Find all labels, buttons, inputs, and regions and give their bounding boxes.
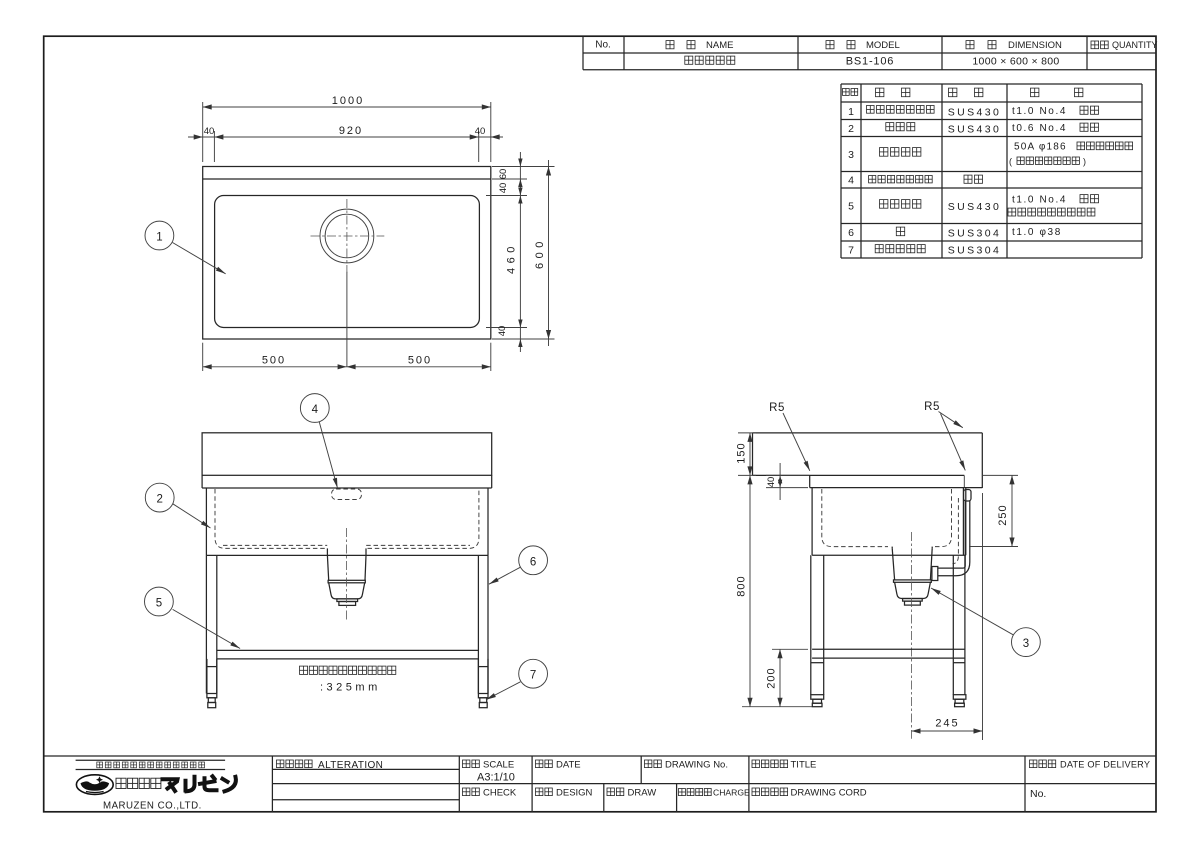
svg-text:DRAWING No.: DRAWING No.	[665, 760, 728, 771]
svg-text:SUS304: SUS304	[948, 228, 1002, 240]
svg-text:3: 3	[1023, 638, 1029, 650]
svg-text:MARUZEN CO.,LTD.: MARUZEN CO.,LTD.	[103, 801, 202, 812]
svg-text:QUANTITY: QUANTITY	[1112, 40, 1158, 50]
svg-text:DIMENSION: DIMENSION	[1008, 40, 1062, 51]
svg-text::325mm: :325mm	[320, 682, 381, 694]
svg-text:1: 1	[848, 106, 854, 118]
svg-text:800: 800	[736, 575, 748, 596]
svg-text:R5: R5	[769, 402, 785, 414]
svg-text:4: 4	[848, 175, 854, 187]
svg-text:No.: No.	[595, 40, 611, 51]
svg-text:t1.0 No.4: t1.0 No.4	[1012, 106, 1067, 117]
svg-text:No.: No.	[1030, 788, 1046, 800]
svg-text:CHECK: CHECK	[483, 788, 517, 799]
svg-text:SUS430: SUS430	[948, 124, 1002, 136]
svg-text:DESIGN: DESIGN	[556, 788, 593, 799]
svg-text:ALTERATION: ALTERATION	[318, 760, 383, 771]
svg-text:4: 4	[312, 404, 319, 416]
svg-text:MODEL: MODEL	[866, 40, 900, 51]
svg-text:7: 7	[530, 670, 536, 682]
svg-text:CHARGE: CHARGE	[713, 788, 750, 798]
svg-text:40: 40	[475, 126, 486, 137]
svg-text:TITLE: TITLE	[791, 760, 817, 771]
svg-text:7: 7	[848, 245, 854, 257]
svg-text:R5: R5	[924, 401, 940, 413]
svg-text:SUS430: SUS430	[948, 107, 1002, 119]
svg-text:1: 1	[156, 232, 162, 244]
svg-text:t0.6 No.4: t0.6 No.4	[1012, 123, 1067, 134]
svg-text:40: 40	[766, 477, 777, 488]
svg-text:6: 6	[530, 556, 536, 568]
svg-text:SCALE: SCALE	[483, 760, 514, 771]
svg-text:40: 40	[497, 326, 508, 337]
svg-text:DATE: DATE	[556, 760, 581, 771]
svg-text:DRAW: DRAW	[628, 788, 657, 799]
svg-text:245: 245	[935, 718, 959, 730]
svg-text:250: 250	[997, 504, 1009, 525]
svg-text:DRAWING CORD: DRAWING CORD	[791, 788, 867, 799]
svg-text:920: 920	[339, 125, 363, 137]
svg-text:5: 5	[156, 598, 162, 610]
svg-text:460: 460	[506, 242, 518, 274]
svg-text:): )	[1083, 157, 1086, 167]
svg-text:3: 3	[848, 149, 854, 161]
svg-text:A3:1/10: A3:1/10	[477, 772, 515, 784]
svg-text:40: 40	[204, 126, 215, 137]
svg-text:150: 150	[736, 442, 748, 463]
svg-text:BS1-106: BS1-106	[846, 56, 894, 68]
svg-text:t1.0 φ38: t1.0 φ38	[1012, 227, 1062, 238]
svg-text:1000: 1000	[332, 95, 364, 107]
svg-text:200: 200	[766, 667, 778, 688]
svg-text:SUS304: SUS304	[948, 245, 1002, 257]
svg-text:t1.0 No.4: t1.0 No.4	[1012, 195, 1067, 206]
svg-text:(: (	[1009, 157, 1012, 167]
svg-text:SUS430: SUS430	[948, 201, 1002, 213]
svg-text:60: 60	[498, 169, 509, 180]
svg-text:50A φ186: 50A φ186	[1014, 142, 1067, 153]
svg-text:1000 × 600 × 800: 1000 × 600 × 800	[972, 56, 1059, 68]
svg-text:NAME: NAME	[706, 40, 733, 51]
svg-text:500: 500	[408, 355, 432, 367]
svg-text:600: 600	[534, 237, 546, 269]
svg-text:2: 2	[848, 123, 854, 135]
svg-text:40: 40	[498, 183, 509, 194]
svg-text:2: 2	[156, 494, 162, 506]
svg-text:DATE OF DELIVERY: DATE OF DELIVERY	[1060, 760, 1150, 770]
svg-text:6: 6	[848, 227, 854, 239]
svg-text:5: 5	[848, 201, 854, 213]
svg-text:500: 500	[262, 355, 286, 367]
